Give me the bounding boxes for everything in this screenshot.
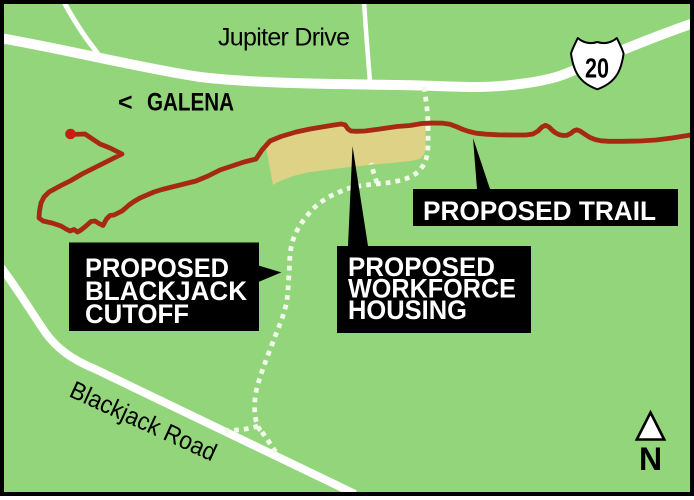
svg-text:PROPOSED TRAIL: PROPOSED TRAIL (423, 196, 656, 226)
svg-text:GALENA: GALENA (147, 89, 234, 117)
svg-text:Jupiter Drive: Jupiter Drive (218, 24, 350, 52)
svg-text:20: 20 (585, 53, 609, 84)
svg-text:N: N (639, 441, 662, 477)
svg-text:HOUSING: HOUSING (348, 295, 467, 325)
svg-text:<: < (118, 89, 133, 117)
svg-text:CUTOFF: CUTOFF (85, 299, 189, 329)
